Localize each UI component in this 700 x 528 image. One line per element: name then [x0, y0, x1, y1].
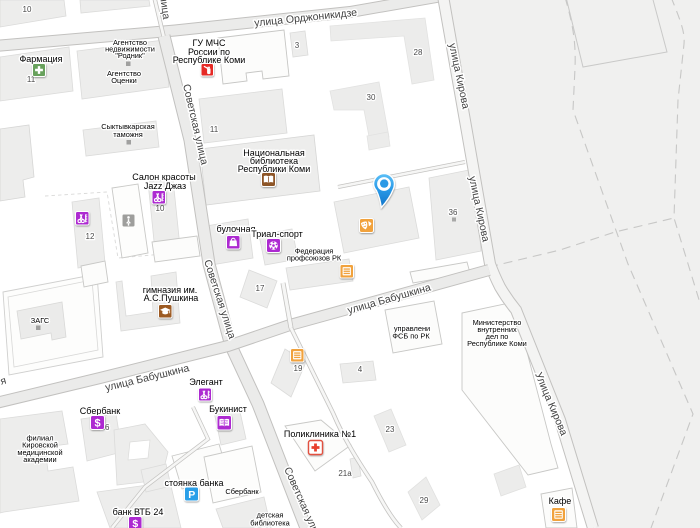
svg-text:Jazz Джаз: Jazz Джаз	[144, 181, 186, 191]
svg-text:Республике Коми: Республике Коми	[467, 339, 527, 348]
svg-text:10: 10	[23, 5, 32, 14]
svg-text:"Родник": "Родник"	[115, 51, 145, 60]
svg-text:3: 3	[295, 41, 300, 50]
svg-text:академии: академии	[23, 455, 56, 464]
svg-text:P: P	[188, 489, 195, 501]
svg-text:30: 30	[367, 93, 376, 102]
svg-text:11: 11	[210, 125, 219, 134]
svg-text:19: 19	[294, 364, 303, 373]
svg-text:ЗАГС: ЗАГС	[31, 316, 50, 325]
svg-text:А.С.Пушкина: А.С.Пушкина	[144, 293, 199, 303]
svg-text:17: 17	[256, 284, 265, 293]
svg-text:Триал-спорт: Триал-спорт	[251, 229, 303, 239]
svg-text:23: 23	[386, 425, 395, 434]
svg-text:Сбербанк: Сбербанк	[80, 406, 120, 416]
svg-text:4: 4	[358, 365, 363, 374]
svg-text:булочная: булочная	[217, 224, 256, 234]
svg-text:Фармация: Фармация	[19, 54, 62, 64]
svg-text:$: $	[132, 518, 138, 528]
svg-text:Кафе: Кафе	[549, 496, 572, 506]
svg-text:таможня: таможня	[113, 130, 143, 139]
svg-text:21а: 21а	[338, 469, 352, 478]
svg-text:12: 12	[86, 232, 95, 241]
svg-text:$: $	[94, 418, 100, 430]
svg-text:10: 10	[156, 204, 165, 213]
svg-text:Элегант: Элегант	[189, 377, 223, 387]
svg-text:Поликлиника №1: Поликлиника №1	[284, 429, 356, 439]
svg-text:Сбербанк: Сбербанк	[225, 487, 259, 496]
svg-text:28: 28	[414, 48, 423, 57]
svg-text:29: 29	[420, 496, 429, 505]
svg-text:профсоюзов РК: профсоюзов РК	[287, 254, 342, 263]
svg-text:банк ВТБ 24: банк ВТБ 24	[113, 507, 164, 517]
svg-text:ФСБ по РК: ФСБ по РК	[392, 332, 430, 341]
svg-text:Букинист: Букинист	[209, 404, 247, 414]
svg-text:Оценки: Оценки	[111, 76, 136, 85]
svg-text:36: 36	[449, 208, 458, 217]
